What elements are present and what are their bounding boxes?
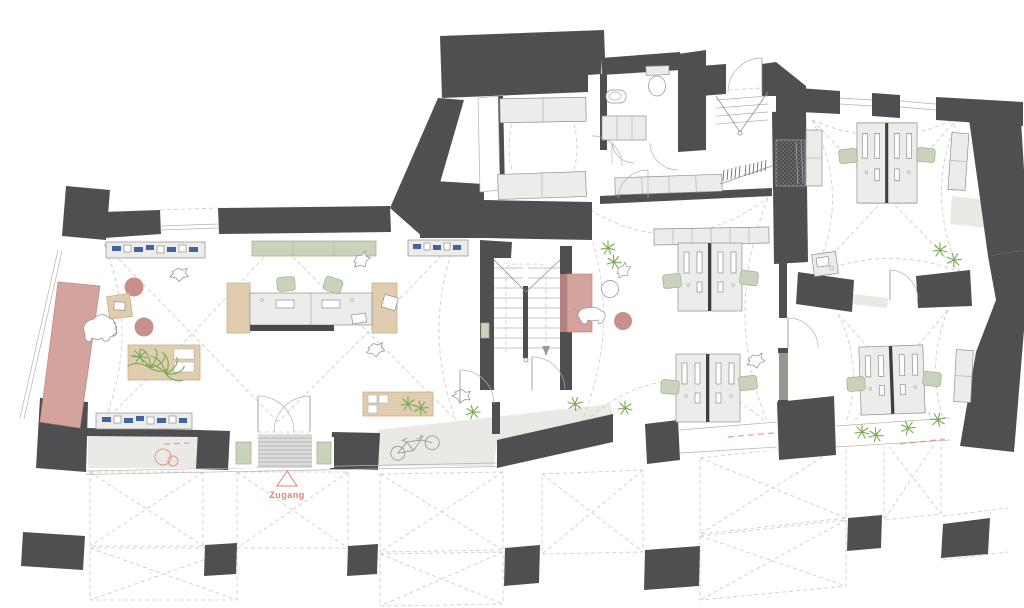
bench <box>500 97 586 123</box>
zugang-label: Zugang <box>269 490 305 500</box>
office-chair <box>662 273 681 289</box>
radiator <box>236 442 251 464</box>
floor-plan: Zugang <box>0 0 1024 608</box>
radiator <box>481 323 489 338</box>
desk-cluster <box>857 123 917 203</box>
wall-cabinet <box>806 130 822 186</box>
lockers <box>615 174 723 195</box>
window-bench <box>40 282 100 428</box>
speckled-passage <box>776 140 805 186</box>
office-chair <box>738 375 758 391</box>
office-chair <box>322 275 344 294</box>
side-cabinet <box>227 283 250 333</box>
bird-figure <box>613 261 634 281</box>
pouf <box>135 318 154 337</box>
arcade-pillars <box>21 515 990 590</box>
pink-sofa <box>567 274 592 332</box>
entry-door <box>728 58 762 92</box>
side-table <box>107 293 133 319</box>
wc-room <box>602 66 678 170</box>
office-chair <box>661 379 680 394</box>
wc-door <box>650 143 678 170</box>
office-chair <box>277 276 296 291</box>
central-desk <box>227 275 398 333</box>
bird-figure <box>747 353 765 368</box>
office-chair <box>922 371 942 387</box>
display-shelf-top-left <box>106 242 205 258</box>
floor-plan-page: Zugang <box>0 0 1024 608</box>
sage-cabinet <box>252 241 376 256</box>
coat-rack <box>720 160 772 184</box>
closet <box>602 116 646 164</box>
entrance: Zugang <box>258 396 312 500</box>
bird-figure <box>451 385 474 406</box>
display-shelf-bottom <box>96 413 192 429</box>
entrance-double-door <box>258 396 310 432</box>
display-shelf-top-right <box>408 240 468 256</box>
plant-icon <box>618 401 632 414</box>
desk-cluster <box>676 354 740 422</box>
bird-figure <box>169 265 190 283</box>
printer <box>812 251 839 276</box>
entrance-steps <box>258 434 312 468</box>
office-chair <box>916 147 935 163</box>
monitor <box>276 300 294 308</box>
office-door <box>890 270 918 300</box>
wc-sink <box>606 90 626 103</box>
radiator <box>317 442 331 464</box>
shelf-row <box>654 227 769 245</box>
planter-box <box>128 345 200 383</box>
closet-door <box>612 142 634 164</box>
staircase <box>494 260 565 390</box>
round-table <box>602 281 619 298</box>
bird-figure <box>366 341 385 358</box>
wc-toilet <box>646 66 669 96</box>
door-threshold <box>851 294 888 308</box>
pouf <box>614 312 632 330</box>
office-chair <box>847 376 866 391</box>
bench <box>498 171 587 199</box>
desk-cluster <box>678 243 742 311</box>
desk-cluster <box>859 345 925 415</box>
access-triangle-icon <box>277 471 297 486</box>
wall-cabinet <box>954 350 974 403</box>
planter-box <box>363 392 433 417</box>
wall-cabinet <box>948 133 969 191</box>
monitor <box>322 300 340 308</box>
office-chair <box>739 270 759 286</box>
office-door <box>788 318 818 348</box>
plant-icon <box>933 243 947 256</box>
plant-icon <box>464 403 481 419</box>
office-chair <box>838 148 857 164</box>
vestibule-floor <box>88 432 198 468</box>
